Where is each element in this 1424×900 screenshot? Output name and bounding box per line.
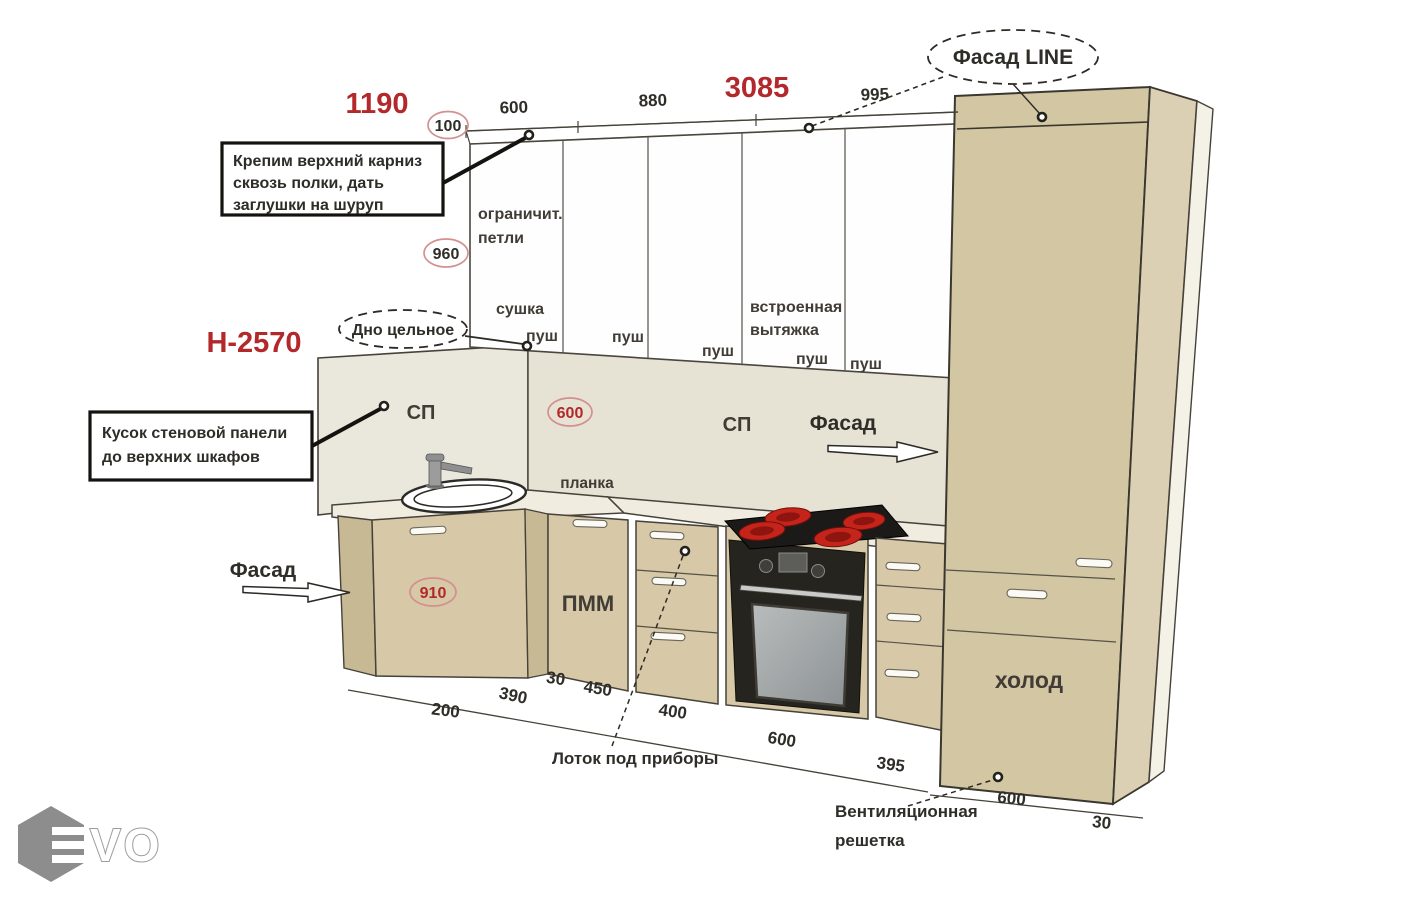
hood-label-line1: встроенная <box>750 299 842 316</box>
facade-left-label: Фасад <box>230 559 297 582</box>
kitchen-drawing: СП 600 СП Фасад ограничит. петли сушка п… <box>0 0 1424 900</box>
corner-cabinet-side <box>338 516 376 676</box>
drawer-handle <box>886 562 920 571</box>
facade-left-callout: Фасад <box>230 559 350 602</box>
upper-cabinets: ограничит. петли сушка пуш пуш пуш встро… <box>466 112 958 378</box>
dim-top-880: 880 <box>638 91 667 111</box>
corner-door-handle <box>410 526 446 535</box>
cornice-note-line3: заглушки на шуруп <box>233 197 384 214</box>
wall-panel-note-line2: до верхних шкафов <box>102 449 260 466</box>
facade-line-label: Фасад LINE <box>953 46 1073 69</box>
drawer-stack-400 <box>636 521 718 704</box>
dim-overall-1190: 1190 <box>346 88 409 120</box>
oven-knob <box>760 560 773 573</box>
evo-logo: VO <box>18 806 162 882</box>
fridge-label: холод <box>995 667 1064 693</box>
hood-label-line2: вытяжка <box>750 322 819 339</box>
push-label-4: пуш <box>796 351 828 368</box>
wall-panel-note-line1: Кусок стеновой панели <box>102 425 287 442</box>
oven-display <box>779 553 807 572</box>
push-label-3: пуш <box>702 343 734 360</box>
logo-text: VO <box>90 819 162 871</box>
dim-overall-3085: 3085 <box>725 72 790 104</box>
tall-door-handle <box>1076 558 1112 568</box>
cornice-note-line1: Крепим верхний карниз <box>233 153 422 170</box>
planka-label: планка <box>560 475 614 492</box>
dim-bottom-600b: 600 <box>996 788 1026 810</box>
limit-hinges-line1: ограничит. <box>478 206 563 223</box>
solid-bottom-label: Дно цельное <box>352 322 454 339</box>
fridge-drawer-handle <box>1007 589 1047 599</box>
facade-left-arrow-icon <box>243 583 350 602</box>
callout-vent-grille: Вентиляционная решетка <box>835 773 1002 850</box>
dim-600-backsplash: 600 <box>557 405 584 422</box>
drawer-handle <box>887 613 921 622</box>
vent-grille-line2: решетка <box>835 831 905 850</box>
dim-top-600: 600 <box>499 98 528 118</box>
kitchen-drawing-page: СП 600 СП Фасад ограничит. петли сушка п… <box>0 0 1424 900</box>
dim-bottom-600a: 600 <box>766 728 797 751</box>
dryer-label: сушка <box>496 301 544 318</box>
dim-bottom-30b: 30 <box>1091 812 1112 833</box>
dim-bottom-30a: 30 <box>545 668 566 689</box>
dim-bottom-200: 200 <box>430 699 460 721</box>
drawer-handle <box>652 577 686 586</box>
drawer-handle <box>650 531 684 540</box>
oven-knob <box>812 565 825 578</box>
cornice-note-line2: сквозь полки, дать <box>233 175 384 192</box>
dim-960: 960 <box>433 246 460 263</box>
limit-hinges-line2: петли <box>478 230 524 247</box>
facade-right-label: Фасад <box>810 412 877 435</box>
dim-bottom-400: 400 <box>657 700 688 723</box>
dishwasher-handle <box>573 519 607 527</box>
sp-left-label: СП <box>407 402 436 424</box>
sp-right-label: СП <box>723 414 752 436</box>
dim-100: 100 <box>435 118 462 135</box>
tall-cabinet: холод <box>940 87 1213 804</box>
push-label-2: пуш <box>612 329 644 346</box>
dim-bottom-395: 395 <box>875 753 906 776</box>
corner-cabinet-door <box>372 509 528 678</box>
vent-grille-line1: Вентиляционная <box>835 802 978 821</box>
drawer-handle <box>885 669 919 678</box>
dim-910: 910 <box>420 585 447 602</box>
height-code-label: Н-2570 <box>206 327 301 359</box>
oven-glass <box>752 604 848 706</box>
cutlery-tray-label: Лоток под приборы <box>552 749 718 768</box>
dim-bottom-450: 450 <box>582 677 613 700</box>
dim-bottom-390: 390 <box>497 683 529 707</box>
filler-panel <box>525 509 548 678</box>
dim-top-995: 995 <box>860 85 889 105</box>
push-label-5: пуш <box>850 356 882 373</box>
drawer-handle <box>651 632 685 641</box>
pmm-label: ПММ <box>562 591 614 616</box>
base-cabinets: 910 ПММ <box>338 505 960 734</box>
